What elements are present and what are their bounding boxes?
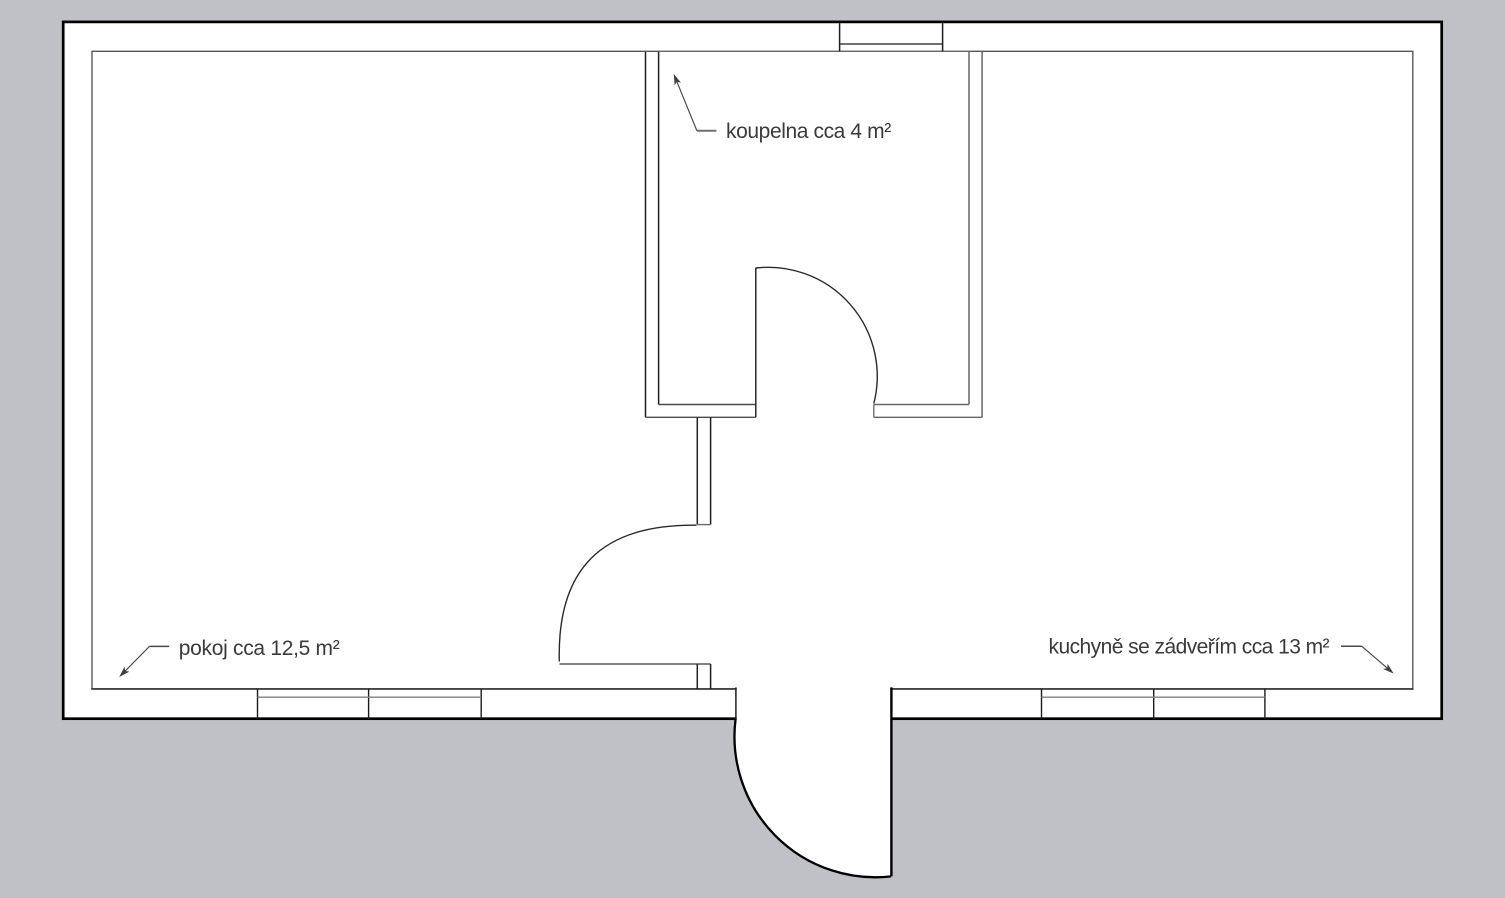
- svg-text:kuchyně se zádveřím cca 13 m²: kuchyně se zádveřím cca 13 m²: [1049, 636, 1330, 659]
- svg-text:pokoj cca 12,5 m²: pokoj cca 12,5 m²: [179, 637, 340, 660]
- svg-text:koupelna cca 4 m²: koupelna cca 4 m²: [726, 120, 891, 143]
